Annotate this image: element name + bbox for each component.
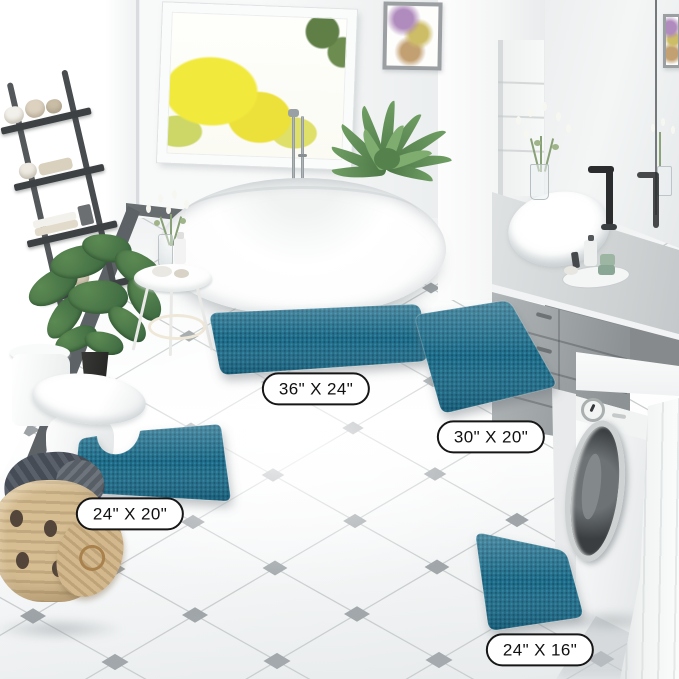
towel-roll <box>45 98 64 115</box>
mirror-art-reflection <box>663 14 679 68</box>
green-jar <box>598 265 615 275</box>
table-ring <box>148 314 206 340</box>
size-label-30x20: 30" X 20" <box>437 420 545 453</box>
towel-roll <box>17 161 38 181</box>
basket-dot <box>44 520 57 537</box>
faucet-handle <box>298 154 307 157</box>
toiletry-tray <box>562 248 634 292</box>
niche-shelf <box>498 81 544 85</box>
flower-bloom <box>524 130 529 138</box>
flower-bloom <box>566 124 571 133</box>
tub-rim <box>184 186 420 243</box>
flower-bloom <box>172 190 177 199</box>
drawer-handle <box>536 312 552 320</box>
drawer-handle <box>536 346 552 354</box>
dial-needle <box>589 404 595 413</box>
palm-center <box>374 148 400 170</box>
faucet-base <box>601 224 617 230</box>
black-faucet <box>588 162 620 230</box>
flower-leaf <box>534 140 541 146</box>
flower-bloom <box>556 112 561 121</box>
flower-bloom <box>528 108 533 117</box>
size-label-36x24: 36" X 24" <box>262 372 370 405</box>
faucet-head <box>288 109 299 117</box>
basket-dot <box>16 552 29 569</box>
flower-leaf <box>180 218 186 224</box>
glass-vase <box>158 234 173 268</box>
flower-bloom <box>184 200 189 209</box>
flower-bloom <box>166 206 171 214</box>
soap <box>564 266 578 275</box>
washer-drum <box>579 453 605 521</box>
flower-stem <box>659 132 661 166</box>
wicker-basket <box>0 450 124 646</box>
flower-bloom <box>158 194 163 203</box>
flower-bloom <box>671 126 675 134</box>
washer-dial <box>581 398 605 422</box>
size-label-24x16: 24" X 16" <box>486 633 594 666</box>
flower-bloom <box>651 124 655 132</box>
flower-leaf <box>552 144 559 150</box>
niche-shadow <box>498 40 503 196</box>
bottle-pump <box>588 235 594 241</box>
bottle-pump <box>177 232 184 239</box>
wall-corner <box>136 0 139 212</box>
flower-bloom <box>542 102 547 111</box>
flower-bloom <box>146 204 151 213</box>
lid-ring-handle <box>75 541 108 574</box>
glass-vase <box>530 164 549 200</box>
flower-bloom <box>516 116 521 125</box>
counter-vase-flowers <box>506 100 584 200</box>
flower-leaf <box>154 220 160 226</box>
flower-bloom <box>661 118 665 126</box>
basket-dot <box>10 510 23 527</box>
table-jar <box>174 269 189 278</box>
size-label-24x20: 24" X 20" <box>76 497 184 530</box>
table-jar <box>152 266 172 277</box>
lotion-bottle <box>584 240 597 266</box>
framed-art <box>382 1 442 70</box>
basket-shadow <box>0 618 124 640</box>
faucet-body <box>606 168 613 226</box>
lotion-bottle <box>174 238 186 264</box>
towel-roll <box>23 98 47 120</box>
faucet-body <box>653 174 659 228</box>
bathroom-scene: 36" X 24" 30" X 20" 24" X 20" 24" X 16" <box>0 0 679 679</box>
mirror-faucet-reflection <box>637 170 665 234</box>
